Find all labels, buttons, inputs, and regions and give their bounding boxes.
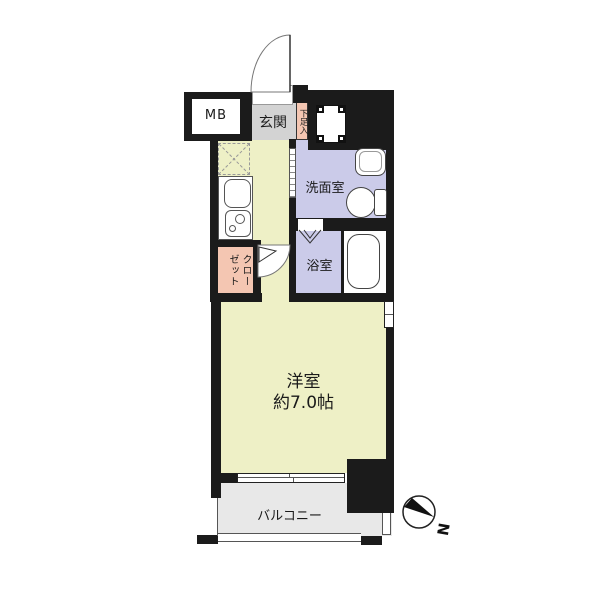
pan-corner-icon: [338, 135, 345, 142]
wall-western-bottom-left: [211, 473, 237, 483]
balcony-rail-right: [382, 513, 391, 535]
balcony-window-tick: [289, 474, 290, 478]
bathroom-door-gap: [298, 219, 323, 231]
pan-corner-icon: [338, 106, 345, 113]
toilet-tank-icon: [374, 189, 387, 216]
shoe-box-label: 下足入: [297, 104, 308, 139]
pan-corner-icon: [317, 106, 324, 113]
floorplan-image: N MB 玄関 下足入 洗面室 浴室 クローゼット 洋室 約7.0帖 バルコニー: [0, 0, 600, 600]
bathroom-label: 浴室: [296, 255, 343, 274]
bathtub-icon: [347, 234, 380, 289]
balcony-corner-right: [361, 536, 382, 545]
entrance-porch: [252, 85, 293, 105]
balcony-label: バルコニー: [217, 505, 362, 524]
western-room-label: 洋室 約7.0帖: [221, 372, 386, 414]
wall-closet-bottom: [210, 293, 262, 302]
balcony-corner-left: [197, 535, 218, 544]
washroom-label: 洗面室: [297, 177, 353, 196]
balcony-window-icon: [237, 473, 345, 483]
wall-porch-right: [293, 85, 308, 103]
side-window-rail: [385, 314, 393, 315]
compass-icon: N: [403, 496, 453, 537]
pan-corner-icon: [317, 135, 324, 142]
washbasin-bowl-icon: [359, 151, 382, 172]
western-room-size: 約7.0帖: [221, 393, 386, 414]
closet-label: クローゼット: [220, 252, 252, 289]
stove-burner-small-icon: [229, 225, 236, 232]
entrance-door-arc-icon: [251, 35, 290, 92]
wall-kitchen-left: [210, 138, 218, 302]
refrigerator-space-icon: [218, 143, 250, 175]
balcony-rail-bottom: [218, 533, 361, 542]
kitchen-sink-icon: [224, 179, 251, 208]
stove-burner-large-icon: [235, 214, 245, 224]
compass-north-label: N: [433, 521, 453, 536]
accordion-door-icon: [289, 148, 296, 198]
balcony-window-tick: [293, 478, 294, 482]
meterbox-label: MB: [192, 108, 240, 123]
balcony-window-rail: [238, 477, 344, 478]
wall-bathroom-bottom: [289, 293, 394, 302]
entrance-label: 玄関: [250, 112, 296, 132]
wall-western-left: [211, 302, 221, 498]
wall-closet-top: [210, 240, 261, 247]
western-room-name: 洋室: [221, 372, 386, 393]
wall-closet-right: [253, 247, 261, 293]
